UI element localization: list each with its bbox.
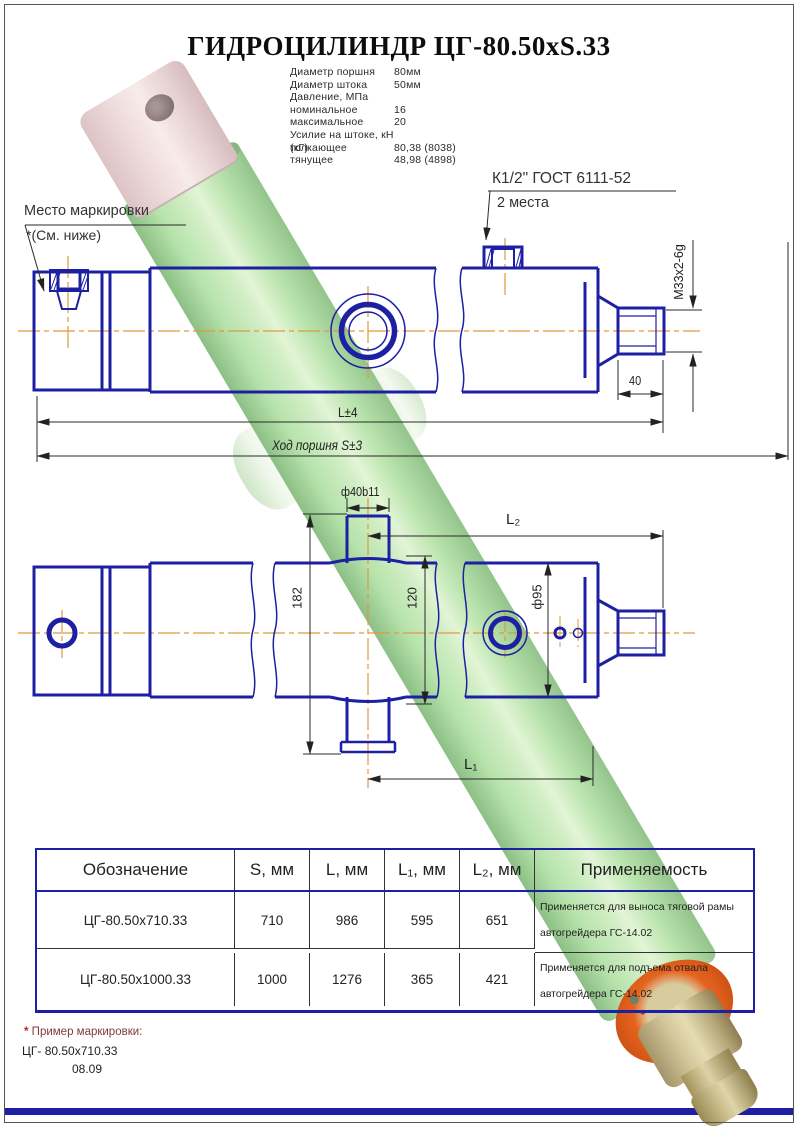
stroke-dim: Ход поршня S±3 — [272, 437, 362, 453]
col-l1: L₁, мм — [385, 850, 460, 892]
drawing-sheet: ГИДРОЦИЛИНДР ЦГ-80.50xS.33 Диаметр поршн… — [0, 0, 798, 1127]
page-title: ГИДРОЦИЛИНДР ЦГ-80.50xS.33 — [119, 31, 679, 62]
table-row-cell: 1276 — [310, 953, 385, 1006]
rod-thread-dim: M33x2-6g — [672, 244, 686, 300]
barrel-dia-dim: ф95 — [530, 584, 545, 609]
spec-row: Усилие на штоке, кН (кГ) — [290, 129, 456, 142]
table-row-cell: 710 — [235, 892, 310, 949]
stud-length-dim: 40 — [629, 373, 641, 388]
col-l: L, мм — [310, 850, 385, 892]
marking-example-date: 08.09 — [72, 1062, 102, 1076]
table-row-cell: ЦГ-80.50х1000.33 — [37, 953, 235, 1006]
spec-row: толкающее80,38 (8038) — [290, 142, 456, 155]
table-row-cell: 365 — [385, 953, 460, 1006]
pin-dia-dim: ф40b11 — [341, 484, 380, 499]
upper-view — [34, 247, 664, 392]
table-row-cell: Применяется для выноса тяговой рамы авто… — [535, 892, 753, 953]
col-application: Применяемость — [535, 850, 753, 892]
size-table: Обозначение S, мм L, мм L₁, мм L₂, мм Пр… — [35, 848, 755, 1013]
marking-place-label: Место маркировки — [24, 203, 149, 219]
port-thread-label: К1/2" ГОСТ 6111-52 — [492, 170, 631, 188]
spec-row: номинальное16 — [290, 104, 456, 117]
col-designation: Обозначение — [37, 850, 235, 892]
spec-row: тянущее48,98 (4898) — [290, 154, 456, 167]
col-l2: L₂, мм — [460, 850, 535, 892]
table-row-cell: 651 — [460, 892, 535, 949]
spec-row: Диаметр штока50мм — [290, 79, 456, 92]
marking-example-note: * Пример маркировки: — [24, 1026, 142, 1038]
lower-view — [34, 516, 664, 752]
table-row-cell: Применяется для подъема отвала автогрейд… — [535, 953, 753, 1010]
l1-dim: L₁ — [464, 756, 477, 773]
table-row-cell: 421 — [460, 953, 535, 1006]
col-s: S, мм — [235, 850, 310, 892]
spec-row: Диаметр поршня80мм — [290, 66, 456, 79]
spec-list: Диаметр поршня80мм Диаметр штока50мм Дав… — [290, 66, 456, 167]
table-row-cell: 1000 — [235, 953, 310, 1006]
table-row-cell: 595 — [385, 892, 460, 949]
table-row-cell: 986 — [310, 892, 385, 949]
pin-span-dim: 182 — [290, 587, 305, 609]
l2-dim: L₂ — [506, 511, 520, 528]
spec-row: максимальное20 — [290, 116, 456, 129]
length-dim: L±4 — [338, 404, 358, 420]
marking-example-value: ЦГ- 80.50х710.33 — [22, 1044, 117, 1058]
marking-note-label: *(См. ниже) — [26, 227, 101, 243]
boss-span-dim: 120 — [405, 587, 420, 609]
table-row-cell: ЦГ-80.50х710.33 — [37, 892, 235, 949]
lower-view-thin — [251, 563, 656, 697]
port-places-label: 2 места — [497, 195, 549, 211]
spec-row: Давление, МПа — [290, 91, 456, 104]
upper-view-thin — [51, 249, 656, 392]
